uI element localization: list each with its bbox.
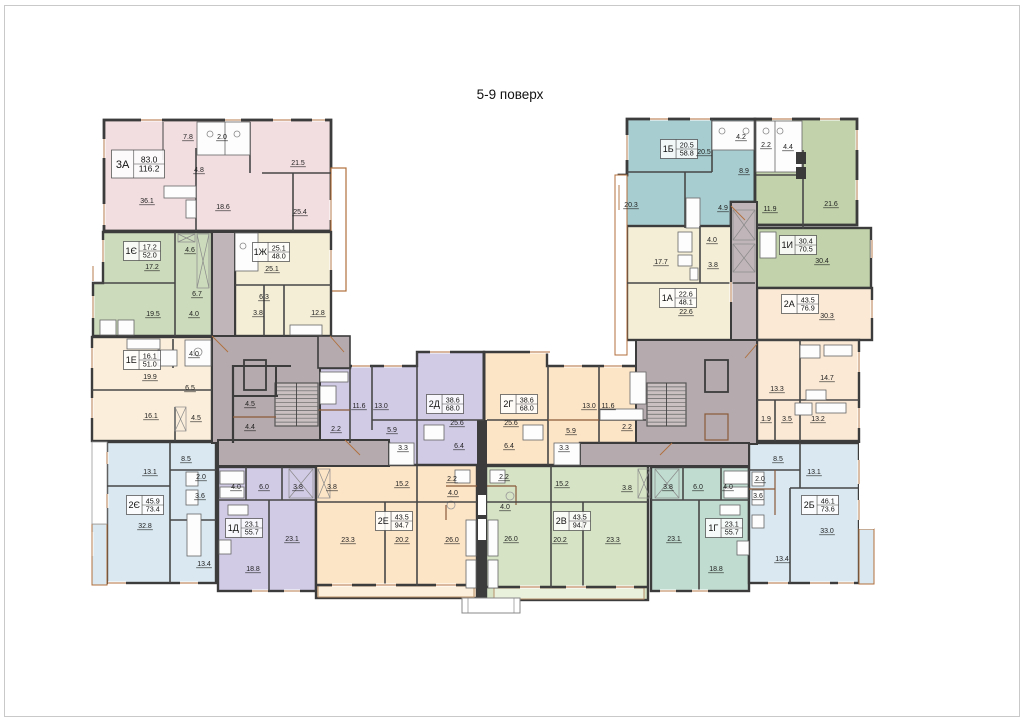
- svg-text:2Є: 2Є: [129, 500, 141, 510]
- svg-text:4.5: 4.5: [245, 401, 255, 408]
- svg-text:1Б: 1Б: [663, 144, 674, 154]
- svg-text:11.6: 11.6: [601, 403, 614, 410]
- svg-text:13.2: 13.2: [811, 416, 825, 423]
- svg-text:52.0: 52.0: [143, 250, 157, 259]
- svg-text:3.6: 3.6: [195, 493, 205, 500]
- svg-text:13.0: 13.0: [374, 403, 388, 410]
- svg-text:6.0: 6.0: [693, 484, 703, 491]
- svg-text:13.4: 13.4: [197, 561, 211, 568]
- svg-text:20.2: 20.2: [395, 537, 409, 544]
- svg-text:7.8: 7.8: [183, 134, 193, 141]
- svg-text:2В: 2В: [556, 516, 567, 526]
- svg-text:6.4: 6.4: [454, 443, 464, 450]
- svg-text:1Д: 1Д: [228, 523, 239, 533]
- svg-text:12.8: 12.8: [311, 310, 325, 317]
- svg-text:4.9: 4.9: [718, 205, 728, 212]
- svg-text:23.3: 23.3: [606, 537, 620, 544]
- svg-text:2Б: 2Б: [804, 500, 815, 510]
- svg-text:15.2: 15.2: [555, 481, 569, 488]
- svg-text:55.7: 55.7: [245, 527, 259, 536]
- svg-text:25.4: 25.4: [293, 209, 307, 216]
- svg-text:21.5: 21.5: [291, 160, 305, 167]
- svg-text:3.8: 3.8: [253, 310, 263, 317]
- svg-text:68.0: 68.0: [520, 403, 534, 412]
- svg-text:3.8: 3.8: [327, 484, 337, 491]
- svg-text:30.4: 30.4: [815, 258, 829, 265]
- svg-text:3.3: 3.3: [559, 445, 569, 452]
- svg-text:23.1: 23.1: [285, 536, 299, 543]
- svg-text:2.0: 2.0: [755, 476, 765, 483]
- svg-text:5.9: 5.9: [387, 427, 397, 434]
- svg-text:2.2: 2.2: [761, 142, 771, 149]
- svg-text:1И: 1И: [782, 240, 793, 250]
- svg-text:48.1: 48.1: [679, 297, 693, 306]
- svg-text:8.5: 8.5: [773, 456, 783, 463]
- svg-text:76.9: 76.9: [801, 303, 815, 312]
- svg-text:16.1: 16.1: [144, 413, 158, 420]
- svg-text:3.5: 3.5: [782, 416, 792, 423]
- svg-text:36.1: 36.1: [140, 198, 154, 205]
- svg-text:14.7: 14.7: [820, 375, 834, 382]
- svg-text:2А: 2А: [784, 299, 795, 309]
- svg-text:94.7: 94.7: [395, 520, 409, 529]
- svg-text:18.8: 18.8: [246, 566, 260, 573]
- svg-text:20.5: 20.5: [697, 149, 711, 156]
- svg-text:4.6: 4.6: [185, 247, 195, 254]
- svg-text:73.4: 73.4: [146, 504, 160, 513]
- svg-text:6.5: 6.5: [185, 385, 195, 392]
- svg-text:17.7: 17.7: [654, 259, 668, 266]
- svg-text:55.7: 55.7: [725, 527, 739, 536]
- svg-text:26.0: 26.0: [445, 537, 459, 544]
- svg-text:11.6: 11.6: [352, 403, 365, 410]
- svg-text:3.8: 3.8: [293, 484, 303, 491]
- svg-text:19.9: 19.9: [143, 374, 157, 381]
- svg-text:70.5: 70.5: [799, 244, 813, 253]
- svg-text:13.1: 13.1: [807, 469, 821, 476]
- svg-text:2.0: 2.0: [217, 134, 227, 141]
- svg-text:26.0: 26.0: [504, 536, 518, 543]
- svg-text:2.0: 2.0: [196, 474, 206, 481]
- svg-text:58.8: 58.8: [680, 148, 694, 157]
- svg-text:25.1: 25.1: [265, 266, 279, 273]
- svg-text:20.2: 20.2: [553, 537, 567, 544]
- svg-text:4.2: 4.2: [736, 134, 746, 141]
- svg-text:51.0: 51.0: [143, 359, 157, 368]
- svg-text:13.3: 13.3: [770, 386, 784, 393]
- svg-text:1.9: 1.9: [761, 416, 771, 423]
- svg-text:25.6: 25.6: [450, 420, 464, 427]
- svg-text:5.9: 5.9: [566, 428, 576, 435]
- svg-text:22.6: 22.6: [679, 309, 693, 316]
- svg-text:2Д: 2Д: [429, 399, 440, 409]
- svg-text:94.7: 94.7: [573, 520, 587, 529]
- svg-text:15.2: 15.2: [395, 481, 409, 488]
- svg-text:48.0: 48.0: [272, 251, 286, 260]
- svg-text:1А: 1А: [662, 293, 673, 303]
- svg-text:20.3: 20.3: [624, 202, 638, 209]
- svg-text:2.2: 2.2: [499, 474, 509, 481]
- svg-text:1Є: 1Є: [126, 246, 138, 256]
- svg-text:4.0: 4.0: [448, 490, 458, 497]
- svg-text:1Е: 1Е: [126, 355, 137, 365]
- svg-text:3.6: 3.6: [753, 493, 763, 500]
- svg-text:17.2: 17.2: [145, 264, 159, 271]
- svg-text:6.3: 6.3: [259, 294, 269, 301]
- svg-text:33.0: 33.0: [820, 528, 834, 535]
- svg-text:18.8: 18.8: [709, 566, 723, 573]
- svg-text:5-9 поверх: 5-9 поверх: [477, 87, 544, 102]
- svg-text:6.4: 6.4: [504, 443, 514, 450]
- svg-text:18.6: 18.6: [216, 204, 230, 211]
- svg-text:21.6: 21.6: [824, 201, 838, 208]
- svg-text:4.5: 4.5: [191, 415, 201, 422]
- svg-text:23.3: 23.3: [341, 537, 355, 544]
- svg-text:2Г: 2Г: [503, 399, 513, 409]
- svg-text:4.8: 4.8: [194, 167, 204, 174]
- svg-text:4.0: 4.0: [707, 237, 717, 244]
- svg-text:11.9: 11.9: [763, 206, 776, 213]
- svg-text:4.4: 4.4: [245, 424, 255, 431]
- svg-text:4.0: 4.0: [723, 484, 733, 491]
- svg-text:23.1: 23.1: [667, 536, 681, 543]
- svg-text:68.0: 68.0: [446, 403, 460, 412]
- svg-text:30.3: 30.3: [820, 313, 834, 320]
- svg-text:25.6: 25.6: [504, 420, 518, 427]
- svg-text:4.0: 4.0: [231, 484, 241, 491]
- svg-text:1Г: 1Г: [708, 523, 718, 533]
- svg-text:6.0: 6.0: [259, 484, 269, 491]
- svg-text:19.5: 19.5: [146, 311, 160, 318]
- svg-text:2.2: 2.2: [331, 426, 341, 433]
- svg-text:3А: 3А: [116, 159, 130, 171]
- svg-text:13.4: 13.4: [775, 556, 789, 563]
- svg-text:2.2: 2.2: [622, 424, 632, 431]
- svg-text:2.2: 2.2: [447, 476, 457, 483]
- svg-text:73.6: 73.6: [821, 504, 835, 513]
- svg-text:3.8: 3.8: [622, 485, 632, 492]
- svg-text:8.5: 8.5: [181, 456, 191, 463]
- svg-text:2Е: 2Е: [378, 516, 389, 526]
- svg-text:32.8: 32.8: [138, 523, 152, 530]
- svg-text:13.1: 13.1: [143, 469, 157, 476]
- svg-text:3.3: 3.3: [398, 445, 408, 452]
- svg-text:4.0: 4.0: [500, 504, 510, 511]
- svg-text:1Ж: 1Ж: [254, 247, 268, 257]
- svg-text:3.8: 3.8: [663, 484, 673, 491]
- svg-text:4.0: 4.0: [189, 351, 199, 358]
- svg-text:8.9: 8.9: [739, 168, 749, 175]
- svg-text:116.2: 116.2: [139, 164, 160, 174]
- svg-text:6.7: 6.7: [192, 291, 202, 298]
- svg-text:4.0: 4.0: [189, 311, 199, 318]
- svg-text:3.8: 3.8: [708, 262, 718, 269]
- svg-text:4.4: 4.4: [783, 144, 793, 151]
- svg-text:13.0: 13.0: [582, 403, 596, 410]
